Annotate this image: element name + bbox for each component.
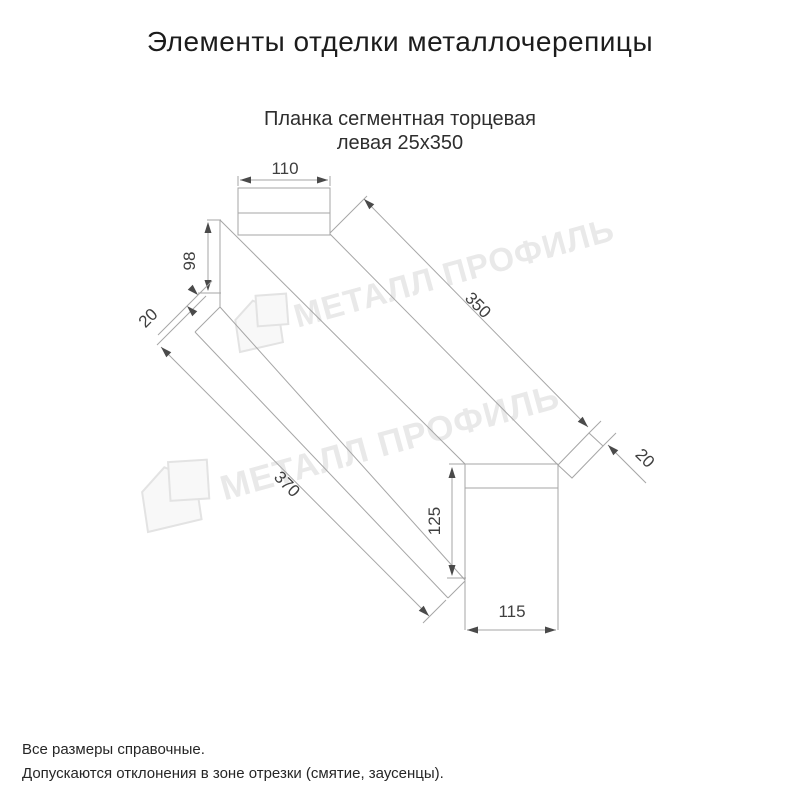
dimension-350-label: 350	[461, 288, 494, 321]
footnote-line2: Допускаются отклонения в зоне отрезки (с…	[22, 762, 444, 786]
dimension-left-height: 98	[180, 220, 221, 293]
watermark-middle: МЕТАЛЛ ПРОФИЛЬ	[227, 199, 620, 354]
dimension-right-flap: 20	[606, 443, 659, 483]
technical-drawing: МЕТАЛЛ ПРОФИЛЬ МЕТАЛЛ ПРОФИЛЬ	[0, 0, 800, 800]
dimension-20-right-label: 20	[631, 445, 658, 472]
footnotes: Все размеры справочные. Допускаются откл…	[22, 738, 444, 786]
dimension-110-label: 110	[271, 159, 298, 178]
dimension-98-label: 98	[180, 252, 199, 271]
dimension-right-height: 125	[425, 467, 466, 578]
dimension-bottom-width: 115	[467, 602, 556, 634]
dimension-115-label: 115	[498, 602, 525, 621]
dimension-125-label: 125	[425, 507, 444, 535]
watermark-lower: МЕТАЛЛ ПРОФИЛЬ	[131, 357, 565, 534]
watermark-brand-text: МЕТАЛЛ ПРОФИЛЬ	[290, 210, 619, 334]
near-end-section	[449, 421, 616, 630]
diagram-page: Элементы отделки металлочерепицы Планка …	[0, 0, 800, 800]
dimension-top-width: 110	[238, 159, 330, 186]
footnote-line1: Все размеры справочные.	[22, 738, 444, 762]
dimension-20-left-label: 20	[135, 305, 162, 332]
